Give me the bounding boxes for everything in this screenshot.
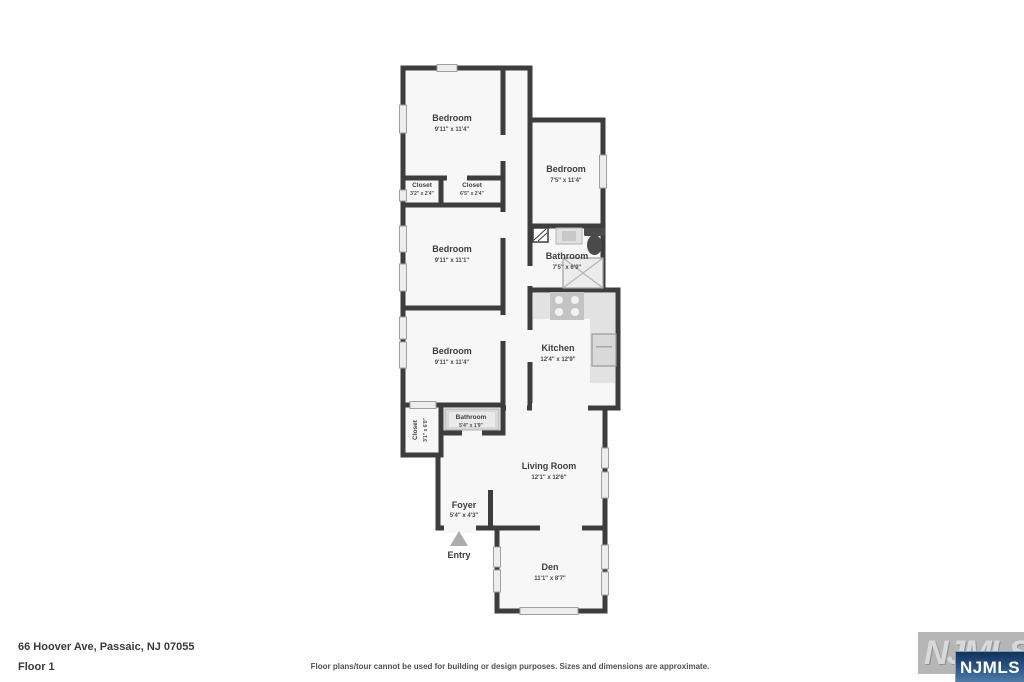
entry-marker: Entry	[447, 531, 470, 560]
room-label: Foyer	[452, 500, 477, 510]
room-dims: 11'1" x 8'7"	[534, 576, 566, 582]
room-dims: 3'2" x 2'4"	[410, 191, 434, 197]
bedroom-bottom-left	[403, 308, 503, 405]
room-dims: 9'11" x 11'4"	[435, 127, 470, 133]
entry-arrow-icon	[450, 531, 468, 546]
room-label: Bedroom	[432, 346, 472, 356]
room-label: Closet	[462, 182, 483, 189]
floor-plan: Entry Bedroom 9'11" x 11'4" Closet 3'2" …	[0, 0, 1024, 682]
room-label: Bedroom	[432, 244, 472, 254]
disclaimer-text: Floor plans/tour cannot be used for buil…	[0, 662, 1020, 671]
room-dims: 7'5" x 11'4"	[550, 178, 582, 184]
room-dims: 6'5" x 2'4"	[460, 191, 484, 197]
room-dims: 5'4" x 4'3"	[450, 513, 479, 519]
foyer-wall-stub	[488, 490, 493, 528]
njmls-badge: NJMLS	[955, 651, 1024, 682]
bathtub-icon	[563, 258, 603, 288]
room-label: Closet	[412, 419, 419, 440]
room-dims: 9'11" x 11'4"	[435, 360, 470, 366]
room-label: Den	[541, 562, 558, 572]
room-dims: 9'11" x 11'1"	[435, 258, 470, 264]
room-label: Bathroom	[546, 251, 589, 261]
closet-vertical	[403, 405, 441, 455]
floor-plan-page: Entry Bedroom 9'11" x 11'4" Closet 3'2" …	[0, 0, 1024, 682]
room-dims: 5'4" x 1'9"	[459, 423, 483, 429]
room-label: Bathroom	[456, 414, 487, 421]
sink-icon	[556, 228, 582, 244]
entry-label: Entry	[447, 550, 470, 560]
room-dims: 3'1" x 6'0"	[423, 417, 429, 441]
room-dims: 12'1" x 12'6"	[531, 475, 566, 481]
stove-icon	[550, 292, 584, 320]
room-walls	[403, 68, 618, 611]
room-label: Bedroom	[432, 113, 472, 123]
njmls-badge-text: NJMLS	[960, 658, 1020, 677]
room-dims: 7'5" x 6'9"	[553, 265, 582, 271]
hallway	[503, 68, 530, 408]
room-label: Living Room	[522, 461, 577, 471]
room-label: Bedroom	[546, 164, 586, 174]
room-label: Kitchen	[541, 343, 574, 353]
room-dims: 12'4" x 12'9"	[540, 357, 575, 363]
bedroom-middle-left	[403, 205, 503, 308]
address-text: 66 Hoover Ave, Passaic, NJ 07055	[18, 641, 195, 653]
room-label: Closet	[412, 182, 433, 189]
fridge-icon	[592, 334, 616, 366]
bedroom-top-left	[403, 68, 503, 178]
shower-hatch-icon	[533, 228, 548, 242]
